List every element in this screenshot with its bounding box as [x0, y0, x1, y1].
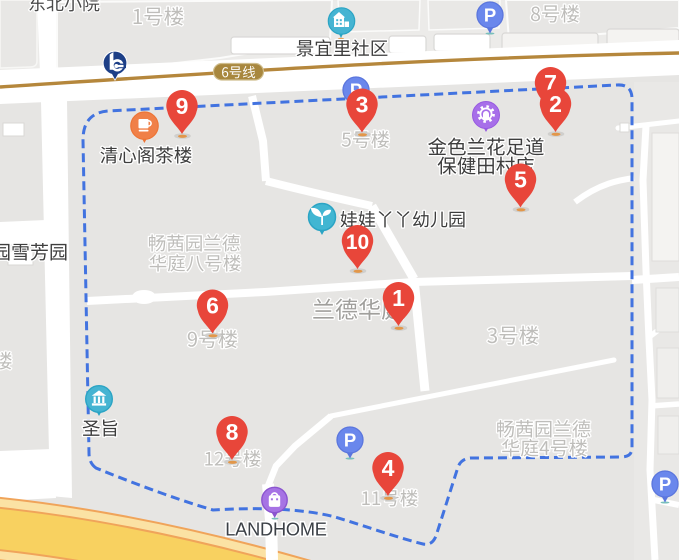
svg-text:P: P [344, 430, 356, 451]
svg-text:1: 1 [392, 285, 405, 311]
svg-text:4: 4 [382, 455, 395, 481]
svg-text:10: 10 [346, 231, 369, 254]
svg-text:9: 9 [176, 93, 189, 119]
svg-text:2: 2 [549, 91, 562, 117]
svg-text:P: P [659, 474, 671, 495]
svg-text:3: 3 [356, 91, 369, 117]
svg-text:8: 8 [226, 419, 239, 445]
svg-text:P: P [484, 5, 496, 26]
svg-text:LANDHOME: LANDHOME [225, 520, 327, 540]
svg-text:5: 5 [514, 166, 527, 192]
svg-text:6: 6 [206, 292, 219, 318]
